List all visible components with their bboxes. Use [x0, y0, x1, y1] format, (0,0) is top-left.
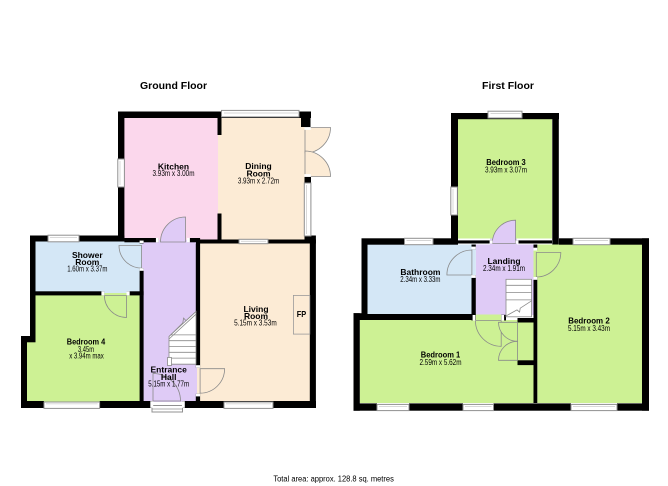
svg-text:3.93m x 2.72m: 3.93m x 2.72m — [238, 176, 280, 185]
svg-text:x 3.94m max: x 3.94m max — [69, 351, 104, 360]
svg-text:3.93m x 3.00m: 3.93m x 3.00m — [153, 169, 195, 178]
svg-text:5.15m x 3.43m: 5.15m x 3.43m — [568, 324, 610, 333]
svg-text:1.60m x 3.37m: 1.60m x 3.37m — [67, 264, 107, 273]
svg-text:2.34m x 3.33m: 2.34m x 3.33m — [400, 275, 440, 284]
svg-text:FP: FP — [297, 309, 307, 319]
svg-text:5.15m x 1.77m: 5.15m x 1.77m — [148, 379, 189, 388]
svg-text:2.59m x 5.62m: 2.59m x 5.62m — [420, 358, 462, 367]
svg-text:Ground Floor: Ground Floor — [140, 80, 207, 92]
svg-text:5.15m x 3.53m: 5.15m x 3.53m — [234, 318, 277, 327]
svg-text:Total area: approx. 128.8 sq.: Total area: approx. 128.8 sq. metres — [273, 475, 394, 484]
svg-text:3.93m x 3.07m: 3.93m x 3.07m — [485, 165, 527, 174]
svg-text:2.34m x 1.91m: 2.34m x 1.91m — [483, 264, 525, 273]
svg-text:First Floor: First Floor — [482, 80, 534, 92]
